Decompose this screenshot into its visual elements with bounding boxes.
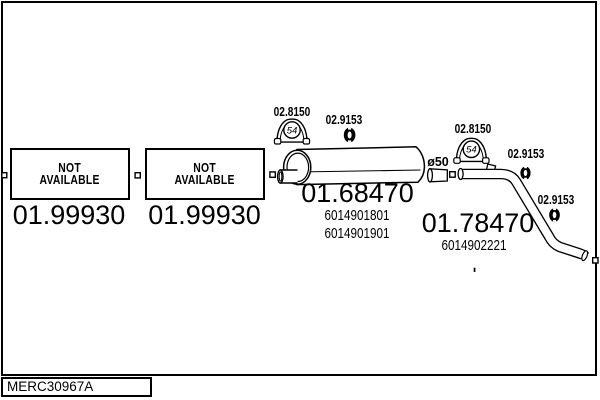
- part-number: 01.68470: [287, 180, 429, 207]
- connector-square: [2, 173, 7, 178]
- not-available-text: NOT AVAILABLE: [40, 162, 100, 187]
- diameter-label: ø50: [420, 156, 456, 169]
- tailpipe-open-end: [458, 169, 463, 180]
- hanger-label: 02.9153: [308, 113, 378, 126]
- part-number: 01.99930: [0, 202, 140, 229]
- hanger-label: 02.9153: [520, 193, 590, 206]
- oe-code: 6014902221: [419, 238, 528, 253]
- not-available-box: NOT AVAILABLE: [10, 148, 130, 200]
- small-mark: [474, 268, 476, 272]
- muffler-outlet-pipe: [428, 169, 448, 182]
- clamp-badge: 54: [466, 145, 477, 156]
- not-available-text: NOT AVAILABLE: [175, 162, 235, 187]
- drawing-code-label: MERC30967A: [3, 379, 93, 394]
- hanger-ring-icon: [549, 208, 560, 222]
- hanger-label: 02.9153: [491, 147, 561, 160]
- not-available-box: NOT AVAILABLE: [145, 148, 265, 200]
- connector-square: [135, 173, 140, 178]
- part-number: 01.99930: [134, 202, 276, 229]
- clamp-badge: 54: [287, 125, 298, 136]
- hanger-ring-icon: [344, 128, 356, 143]
- exhaust-parts-diagram-page: 54 54: [0, 0, 600, 400]
- drawing-code-box: MERC30967A: [1, 377, 152, 397]
- not-available-line2: AVAILABLE: [175, 174, 235, 187]
- clamp-icon: 54: [274, 119, 309, 144]
- connector-square: [593, 258, 598, 263]
- hanger-ring-icon: [520, 166, 530, 179]
- clamp-icon: 54: [454, 138, 489, 163]
- connector-square: [270, 172, 275, 177]
- connector-square: [450, 172, 456, 178]
- oe-code: 6014901901: [302, 226, 411, 241]
- part-number: 01.78470: [407, 210, 549, 237]
- oe-code: 6014901801: [302, 208, 411, 223]
- not-available-line2: AVAILABLE: [40, 174, 100, 187]
- clamp-label: 02.8150: [438, 122, 508, 135]
